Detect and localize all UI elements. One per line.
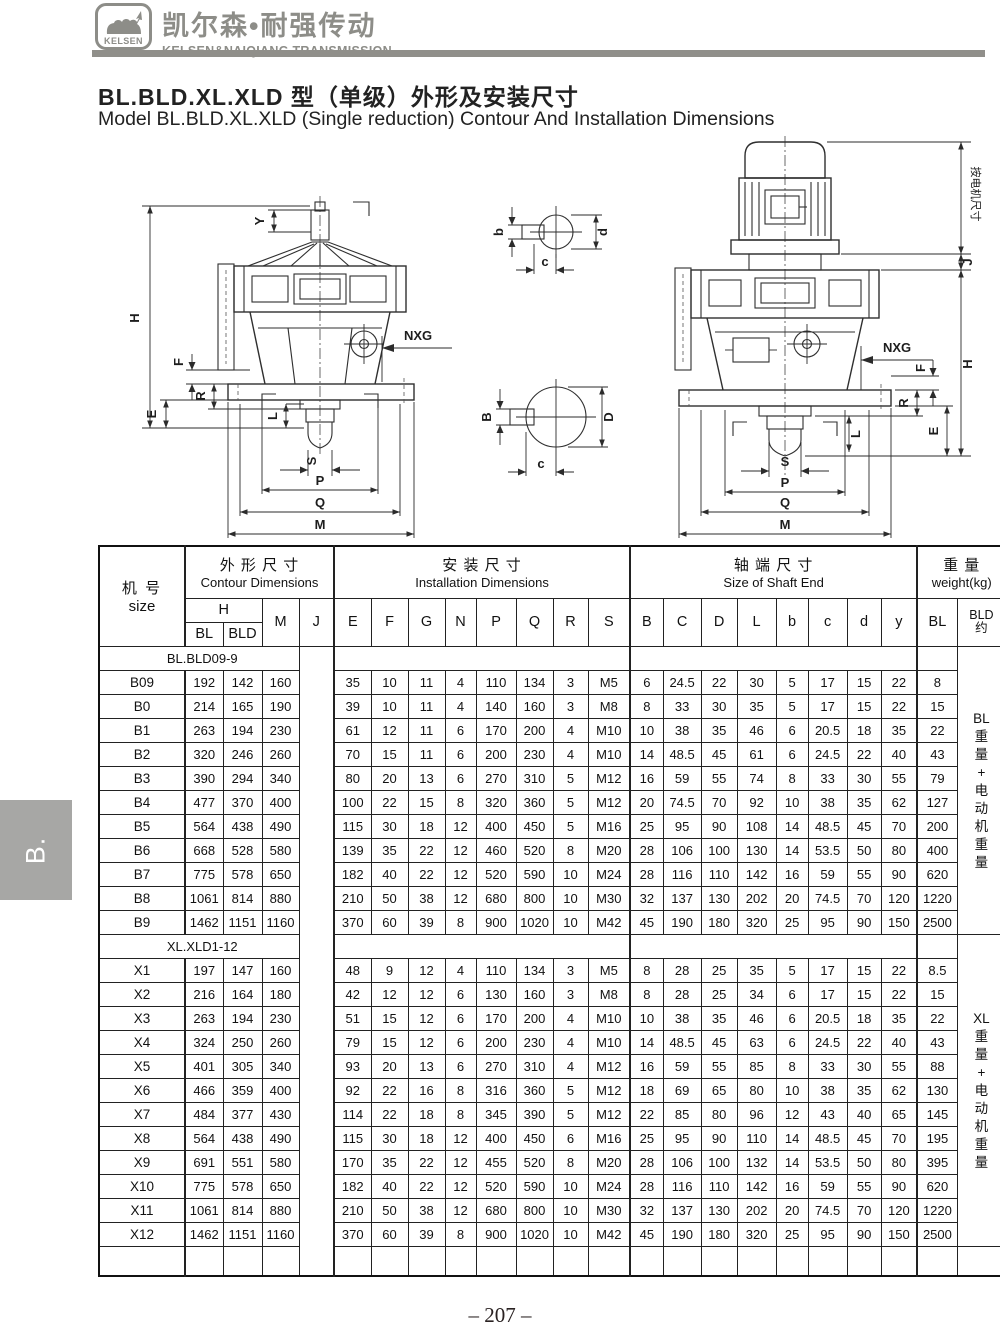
value-cell: 12 bbox=[445, 838, 476, 862]
section-tab-b[interactable]: B. bbox=[0, 800, 72, 900]
size-cell: B0 bbox=[99, 694, 185, 718]
value-cell: 96 bbox=[737, 1102, 776, 1126]
value-cell: 400 bbox=[262, 790, 299, 814]
value-cell: 130 bbox=[737, 838, 776, 862]
value-cell: 142 bbox=[737, 862, 776, 886]
value-cell: 620 bbox=[917, 862, 957, 886]
value-cell: 320 bbox=[476, 790, 516, 814]
value-cell: 88 bbox=[917, 1054, 957, 1078]
column-header-y: y bbox=[881, 598, 917, 646]
value-cell: 60 bbox=[371, 910, 408, 934]
value-cell: 59 bbox=[808, 862, 847, 886]
value-cell: 48 bbox=[334, 958, 371, 982]
value-cell: 580 bbox=[262, 1150, 299, 1174]
value-cell: 45 bbox=[701, 742, 737, 766]
value-cell: 137 bbox=[663, 886, 701, 910]
size-cell: B7 bbox=[99, 862, 185, 886]
value-cell: 528 bbox=[223, 838, 262, 862]
value-cell: 160 bbox=[262, 958, 299, 982]
value-cell: 775 bbox=[185, 862, 223, 886]
value-cell: 8 bbox=[917, 670, 957, 694]
value-cell: 38 bbox=[808, 790, 847, 814]
table-row: X11971471604891241101343M582825355171522… bbox=[99, 958, 1000, 982]
value-cell: 310 bbox=[516, 1054, 553, 1078]
dim-label-m-right: M bbox=[780, 517, 791, 532]
table-row: B0919214216035101141101343M5624.52230517… bbox=[99, 670, 1000, 694]
column-header-weight-BL: BL bbox=[917, 598, 957, 646]
column-header-size: 机 号 size bbox=[99, 546, 185, 646]
value-cell: 1151 bbox=[223, 1222, 262, 1246]
value-cell: 95 bbox=[808, 910, 847, 934]
size-cell: X11 bbox=[99, 1198, 185, 1222]
value-cell: 30 bbox=[371, 1126, 408, 1150]
install-cn: 安 装 尺 寸 bbox=[335, 554, 629, 575]
value-cell: 35 bbox=[737, 958, 776, 982]
value-cell: 6 bbox=[445, 766, 476, 790]
value-cell: 48.5 bbox=[808, 1126, 847, 1150]
value-cell: 195 bbox=[917, 1126, 957, 1150]
value-cell: 1061 bbox=[185, 886, 223, 910]
value-cell: 16 bbox=[630, 1054, 663, 1078]
group-label: BL.BLD09-9 bbox=[99, 646, 299, 670]
value-cell: 15 bbox=[847, 982, 881, 1006]
value-cell: 35 bbox=[737, 694, 776, 718]
value-cell: 10 bbox=[553, 886, 588, 910]
value-cell: 115 bbox=[334, 814, 371, 838]
value-cell: 116 bbox=[663, 862, 701, 886]
value-cell: 38 bbox=[408, 886, 445, 910]
page-title-cn: BL.BLD.XL.XLD 型（单级）外形及安装尺寸 bbox=[98, 78, 579, 112]
value-cell: 22 bbox=[371, 1102, 408, 1126]
value-cell: 170 bbox=[334, 1150, 371, 1174]
value-cell: 230 bbox=[516, 742, 553, 766]
value-cell: 62 bbox=[881, 1078, 917, 1102]
value-cell: 450 bbox=[516, 814, 553, 838]
column-header-d: d bbox=[847, 598, 881, 646]
value-cell: 340 bbox=[262, 766, 299, 790]
value-cell: 100 bbox=[701, 838, 737, 862]
value-cell: 80 bbox=[701, 1102, 737, 1126]
value-cell: 65 bbox=[881, 1102, 917, 1126]
group-header-row: BL.BLD09-9BL重量+电动机重量 bbox=[99, 646, 1000, 670]
value-cell: 61 bbox=[737, 742, 776, 766]
value-cell: 8 bbox=[445, 1102, 476, 1126]
size-cell: X8 bbox=[99, 1126, 185, 1150]
value-cell: 466 bbox=[185, 1078, 223, 1102]
value-cell: 6 bbox=[776, 982, 808, 1006]
right-drawing-gearmotor: NXG 按电机尺寸 J H F R E L S bbox=[635, 132, 985, 544]
value-cell: 775 bbox=[185, 1174, 223, 1198]
value-cell: 74.5 bbox=[808, 886, 847, 910]
value-cell: 25 bbox=[630, 1126, 663, 1150]
weight-approx-label: 约 bbox=[958, 622, 1000, 635]
table-row: X96915515801703522124555208M202810610013… bbox=[99, 1150, 1000, 1174]
table-row: X7484377430114221883453905M1222858096124… bbox=[99, 1102, 1000, 1126]
value-cell: 5 bbox=[776, 694, 808, 718]
dimensions-table: 机 号 size 外 形 尺 寸 Contour Dimensions 安 装 … bbox=[98, 545, 1000, 1277]
value-cell: 12 bbox=[371, 982, 408, 1006]
value-cell: 8 bbox=[445, 910, 476, 934]
size-cell: X12 bbox=[99, 1222, 185, 1246]
value-cell: 35 bbox=[847, 790, 881, 814]
shaft-cn: 轴 端 尺 寸 bbox=[631, 554, 916, 575]
value-cell: 25 bbox=[776, 910, 808, 934]
value-cell: 46 bbox=[737, 1006, 776, 1030]
blank-cell bbox=[847, 1246, 881, 1276]
column-header-D: D bbox=[701, 598, 737, 646]
column-header-J: J bbox=[299, 598, 334, 646]
value-cell: 70 bbox=[701, 790, 737, 814]
brand-name-cn: 凯尔森•耐强传动 bbox=[162, 4, 392, 43]
value-cell: 3 bbox=[553, 670, 588, 694]
value-cell: 80 bbox=[737, 1078, 776, 1102]
page-title-en: Model BL.BLD.XL.XLD (Single reduction) C… bbox=[98, 108, 774, 131]
value-cell: 230 bbox=[262, 1006, 299, 1030]
value-cell: 28 bbox=[663, 982, 701, 1006]
value-cell: 8 bbox=[553, 1150, 588, 1174]
value-cell: 46 bbox=[737, 718, 776, 742]
value-cell: 20 bbox=[630, 790, 663, 814]
value-cell: 45 bbox=[847, 1126, 881, 1150]
dim-label-q-right: Q bbox=[780, 495, 790, 510]
value-cell: 85 bbox=[663, 1102, 701, 1126]
value-cell: 230 bbox=[516, 1030, 553, 1054]
size-cell: X5 bbox=[99, 1054, 185, 1078]
value-cell: 80 bbox=[881, 838, 917, 862]
value-cell: 490 bbox=[262, 814, 299, 838]
value-cell: 430 bbox=[262, 1102, 299, 1126]
value-cell: 490 bbox=[262, 1126, 299, 1150]
value-cell: 15 bbox=[371, 742, 408, 766]
value-cell: 24.5 bbox=[808, 1030, 847, 1054]
value-cell: 35 bbox=[881, 718, 917, 742]
value-cell: 580 bbox=[262, 838, 299, 862]
value-cell: 70 bbox=[334, 742, 371, 766]
value-cell: 15 bbox=[371, 1006, 408, 1030]
value-cell: 316 bbox=[476, 1078, 516, 1102]
value-cell: 370 bbox=[223, 790, 262, 814]
value-cell: M20 bbox=[588, 838, 630, 862]
value-cell: 9 bbox=[371, 958, 408, 982]
dims-table-body: BL.BLD09-9BL重量+电动机重量B0919214216035101141… bbox=[99, 646, 1000, 1276]
value-cell: 450 bbox=[516, 1126, 553, 1150]
page-number: – 207 – bbox=[0, 1303, 1000, 1328]
value-cell: 18 bbox=[630, 1078, 663, 1102]
dim-label-h: H bbox=[127, 313, 142, 322]
column-header-c: c bbox=[808, 598, 847, 646]
dim-label-m: M bbox=[315, 517, 326, 532]
value-cell: 50 bbox=[371, 886, 408, 910]
value-cell: 16 bbox=[630, 766, 663, 790]
column-header-H: H bbox=[185, 598, 262, 622]
table-row: X1077557865018240221252059010M2428116110… bbox=[99, 1174, 1000, 1198]
value-cell: 74.5 bbox=[663, 790, 701, 814]
value-cell: 150 bbox=[881, 910, 917, 934]
value-cell: 15 bbox=[847, 958, 881, 982]
table-row: B126319423061121161702004M1010383546620.… bbox=[99, 718, 1000, 742]
value-cell: 80 bbox=[334, 766, 371, 790]
value-cell: 18 bbox=[408, 814, 445, 838]
value-cell: 40 bbox=[371, 1174, 408, 1198]
dim-label-q: Q bbox=[315, 495, 325, 510]
value-cell: 200 bbox=[516, 1006, 553, 1030]
size-cell: B6 bbox=[99, 838, 185, 862]
value-cell: 305 bbox=[223, 1054, 262, 1078]
value-cell: 5 bbox=[776, 958, 808, 982]
value-cell: 230 bbox=[262, 718, 299, 742]
section-tab-label: B. bbox=[20, 836, 51, 864]
value-cell: 192 bbox=[185, 670, 223, 694]
value-cell: 48.5 bbox=[808, 814, 847, 838]
value-cell: 24.5 bbox=[663, 670, 701, 694]
value-cell: 2500 bbox=[917, 1222, 957, 1246]
value-cell: 10 bbox=[776, 1078, 808, 1102]
value-cell: 120 bbox=[881, 886, 917, 910]
value-cell: 114 bbox=[334, 1102, 371, 1126]
value-cell: 1151 bbox=[223, 910, 262, 934]
value-cell: 28 bbox=[630, 862, 663, 886]
blank-cell bbox=[630, 1246, 663, 1276]
value-cell: 11 bbox=[408, 694, 445, 718]
value-cell: 202 bbox=[737, 1198, 776, 1222]
blank-cell bbox=[957, 1246, 1000, 1276]
group-header-row: XL.XLD1-12XL重量+电动机重量 bbox=[99, 934, 1000, 958]
column-header-H-BL: BL bbox=[185, 622, 223, 646]
value-cell: 800 bbox=[516, 1198, 553, 1222]
value-cell: 33 bbox=[663, 694, 701, 718]
dim-label-y: Y bbox=[252, 216, 267, 225]
dim-label-small-c: c bbox=[541, 254, 548, 269]
value-cell: 359 bbox=[223, 1078, 262, 1102]
install-en: Installation Dimensions bbox=[335, 575, 629, 590]
value-cell: 38 bbox=[663, 718, 701, 742]
value-cell: 140 bbox=[476, 694, 516, 718]
value-cell: 12 bbox=[445, 1126, 476, 1150]
value-cell: 8 bbox=[630, 982, 663, 1006]
value-cell: 70 bbox=[881, 1126, 917, 1150]
blank-cell bbox=[917, 1246, 957, 1276]
value-cell: 50 bbox=[847, 838, 881, 862]
value-cell: 45 bbox=[701, 1030, 737, 1054]
value-cell: 320 bbox=[185, 742, 223, 766]
value-cell: 85 bbox=[737, 1054, 776, 1078]
value-cell: 12 bbox=[371, 718, 408, 742]
blank-cell bbox=[663, 1246, 701, 1276]
value-cell: 24.5 bbox=[808, 742, 847, 766]
value-cell: 202 bbox=[737, 886, 776, 910]
value-cell: 30 bbox=[371, 814, 408, 838]
dim-label-small-b: b bbox=[491, 228, 506, 236]
value-cell: 10 bbox=[553, 862, 588, 886]
value-cell: M20 bbox=[588, 1150, 630, 1174]
value-cell: 12 bbox=[445, 862, 476, 886]
value-cell: 74 bbox=[737, 766, 776, 790]
value-cell: 5 bbox=[553, 814, 588, 838]
value-cell: 1061 bbox=[185, 1198, 223, 1222]
value-cell: 400 bbox=[917, 838, 957, 862]
table-row: B021416519039101141401603M88333035517152… bbox=[99, 694, 1000, 718]
value-cell: 20 bbox=[371, 766, 408, 790]
value-cell: 28 bbox=[630, 1150, 663, 1174]
size-cell: B3 bbox=[99, 766, 185, 790]
value-cell: 16 bbox=[408, 1078, 445, 1102]
value-cell: 180 bbox=[262, 982, 299, 1006]
dim-label-e-right: E bbox=[926, 426, 941, 435]
dim-label-e: E bbox=[144, 409, 159, 418]
table-row: X540130534093201362703104M12165955858333… bbox=[99, 1054, 1000, 1078]
size-cell: B4 bbox=[99, 790, 185, 814]
value-cell: 260 bbox=[262, 742, 299, 766]
value-cell: 35 bbox=[371, 838, 408, 862]
column-header-R: R bbox=[553, 598, 588, 646]
dim-label-motor-size: 按电机尺寸 bbox=[969, 167, 983, 222]
value-cell: M10 bbox=[588, 1030, 630, 1054]
value-cell: 53.5 bbox=[808, 1150, 847, 1174]
value-cell: 14 bbox=[776, 1126, 808, 1150]
value-cell: 35 bbox=[701, 718, 737, 742]
value-cell: 93 bbox=[334, 1054, 371, 1078]
value-cell: 10 bbox=[630, 1006, 663, 1030]
value-cell: 60 bbox=[371, 1222, 408, 1246]
value-cell: M12 bbox=[588, 1102, 630, 1126]
blank-cell bbox=[917, 934, 957, 958]
value-cell: 18 bbox=[408, 1126, 445, 1150]
value-cell: 190 bbox=[663, 1222, 701, 1246]
size-cell: B2 bbox=[99, 742, 185, 766]
value-cell: 95 bbox=[663, 1126, 701, 1150]
value-cell: 263 bbox=[185, 1006, 223, 1030]
value-cell: 520 bbox=[476, 862, 516, 886]
value-cell: 35 bbox=[334, 670, 371, 694]
value-cell: 180 bbox=[701, 910, 737, 934]
dim-label-p-right: P bbox=[781, 475, 790, 490]
value-cell: 5 bbox=[553, 1078, 588, 1102]
value-cell: 55 bbox=[881, 1054, 917, 1078]
value-cell: 1160 bbox=[262, 910, 299, 934]
value-cell: 33 bbox=[808, 766, 847, 790]
value-cell: 38 bbox=[408, 1198, 445, 1222]
value-cell: 127 bbox=[917, 790, 957, 814]
value-cell: 8 bbox=[445, 1222, 476, 1246]
table-row: B55644384901153018124004505M162595901081… bbox=[99, 814, 1000, 838]
value-cell: 8 bbox=[445, 790, 476, 814]
value-cell: 14 bbox=[630, 1030, 663, 1054]
value-cell: 22 bbox=[408, 1174, 445, 1198]
table-row: X432425026079151262002304M101448.5456362… bbox=[99, 1030, 1000, 1054]
table-row: B777557865018240221252059010M24281161101… bbox=[99, 862, 1000, 886]
blank-cell bbox=[371, 1246, 408, 1276]
value-cell: 33 bbox=[808, 1054, 847, 1078]
value-cell: 6 bbox=[445, 1006, 476, 1030]
value-cell: 62 bbox=[881, 790, 917, 814]
value-cell: 132 bbox=[737, 1150, 776, 1174]
value-cell: 22 bbox=[371, 790, 408, 814]
value-cell: 390 bbox=[516, 1102, 553, 1126]
value-cell: 35 bbox=[371, 1150, 408, 1174]
value-cell: 12 bbox=[776, 1102, 808, 1126]
value-cell: 11 bbox=[408, 742, 445, 766]
value-cell: 39 bbox=[408, 910, 445, 934]
value-cell: 340 bbox=[262, 1054, 299, 1078]
value-cell: 15 bbox=[847, 694, 881, 718]
value-cell: 22 bbox=[701, 670, 737, 694]
value-cell: 142 bbox=[737, 1174, 776, 1198]
value-cell: 310 bbox=[516, 766, 553, 790]
size-cell: B09 bbox=[99, 670, 185, 694]
value-cell: M12 bbox=[588, 1054, 630, 1078]
blank-cell bbox=[445, 1246, 476, 1276]
value-cell: M12 bbox=[588, 790, 630, 814]
size-cell: X7 bbox=[99, 1102, 185, 1126]
value-cell: 4 bbox=[445, 958, 476, 982]
value-cell: 484 bbox=[185, 1102, 223, 1126]
value-cell: 11 bbox=[408, 718, 445, 742]
value-cell: 4 bbox=[553, 1030, 588, 1054]
value-cell: M30 bbox=[588, 886, 630, 910]
value-cell: 35 bbox=[881, 1006, 917, 1030]
value-cell: 139 bbox=[334, 838, 371, 862]
value-cell: 55 bbox=[881, 766, 917, 790]
value-cell: 22 bbox=[881, 982, 917, 1006]
blank-cell bbox=[630, 646, 917, 670]
value-cell: 17 bbox=[808, 982, 847, 1006]
value-cell: 360 bbox=[516, 1078, 553, 1102]
value-cell: 48.5 bbox=[663, 742, 701, 766]
value-cell: 40 bbox=[881, 742, 917, 766]
value-cell: 8.5 bbox=[917, 958, 957, 982]
value-cell: 108 bbox=[737, 814, 776, 838]
value-cell: M8 bbox=[588, 694, 630, 718]
value-cell: 160 bbox=[516, 694, 553, 718]
value-cell: 400 bbox=[476, 1126, 516, 1150]
value-cell: 620 bbox=[917, 1174, 957, 1198]
value-cell: 92 bbox=[737, 790, 776, 814]
value-cell: 650 bbox=[262, 1174, 299, 1198]
value-cell: 17 bbox=[808, 958, 847, 982]
value-cell: 115 bbox=[334, 1126, 371, 1150]
weight-en: weight(kg) bbox=[918, 575, 1000, 590]
value-cell: 130 bbox=[476, 982, 516, 1006]
column-header-C: C bbox=[663, 598, 701, 646]
value-cell: 100 bbox=[334, 790, 371, 814]
value-cell: 90 bbox=[701, 814, 737, 838]
value-cell: 90 bbox=[881, 862, 917, 886]
dim-label-l-right: L bbox=[848, 430, 863, 438]
value-cell: 5 bbox=[553, 1102, 588, 1126]
dim-label-r: R bbox=[193, 391, 208, 401]
value-cell: 564 bbox=[185, 814, 223, 838]
value-cell: 22 bbox=[917, 718, 957, 742]
value-cell: 22 bbox=[408, 1150, 445, 1174]
value-cell: 216 bbox=[185, 982, 223, 1006]
blank-cell bbox=[776, 1246, 808, 1276]
value-cell: 63 bbox=[737, 1030, 776, 1054]
table-row: X326319423051151261702004M1010383546620.… bbox=[99, 1006, 1000, 1030]
dim-label-nxg: NXG bbox=[404, 328, 432, 343]
value-cell: 520 bbox=[516, 838, 553, 862]
value-cell: 10 bbox=[553, 910, 588, 934]
value-cell: M8 bbox=[588, 982, 630, 1006]
value-cell: 30 bbox=[737, 670, 776, 694]
value-cell: 14 bbox=[630, 742, 663, 766]
dim-label-large-b: B bbox=[479, 412, 494, 421]
value-cell: 680 bbox=[476, 1198, 516, 1222]
value-cell: 691 bbox=[185, 1150, 223, 1174]
dim-label-l: L bbox=[265, 412, 280, 420]
value-cell: 3 bbox=[553, 694, 588, 718]
value-cell: 6 bbox=[445, 982, 476, 1006]
dim-label-f-right: F bbox=[913, 364, 928, 372]
